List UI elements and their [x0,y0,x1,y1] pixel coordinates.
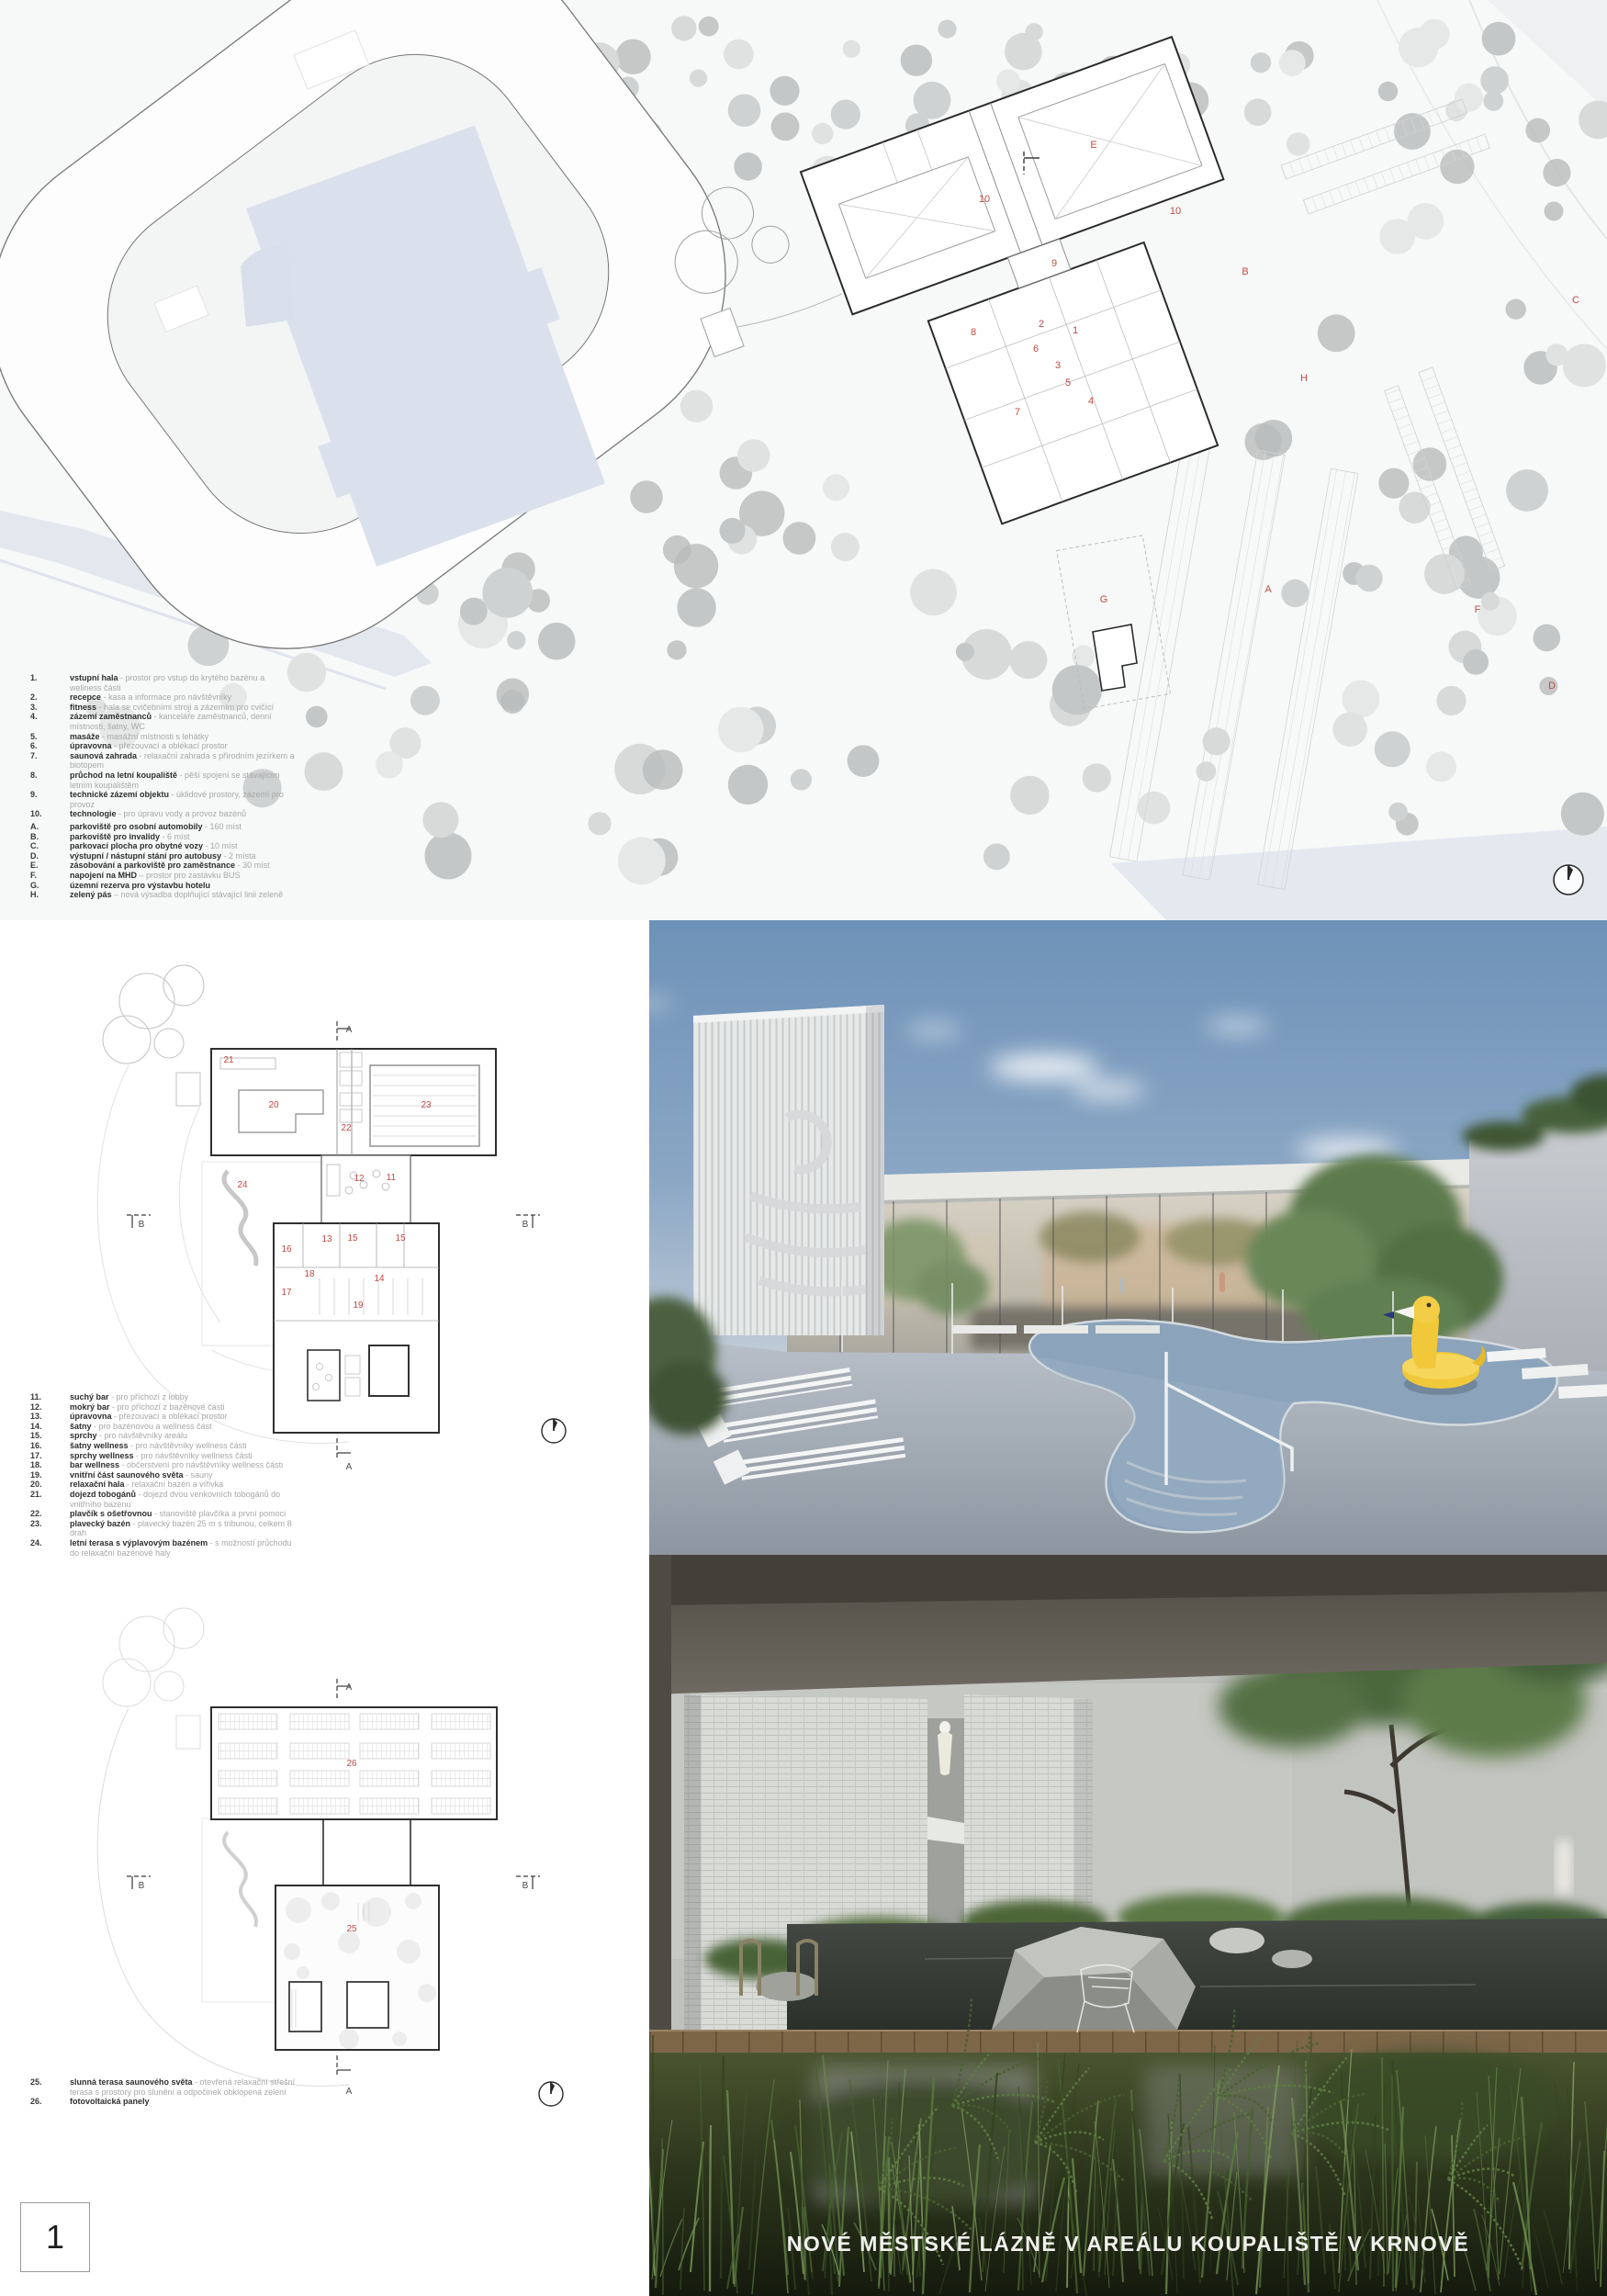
plan-label: 6 [1033,343,1039,355]
legend-row: 1.vstupní hala - prostor pro vstup do kr… [30,673,306,692]
legend-row: H.zelený pás – nová výsadba doplňující s… [30,890,306,900]
roof-plan-legend: 25.slunná terasa saunového světa - otevř… [30,2077,306,2107]
plan-label: H [1300,373,1308,384]
plan-label: 25 [346,1924,357,1934]
legend-row: 6.úpravovna - přezouvací a oblékací pros… [30,741,306,751]
person-right [1556,1840,1572,1895]
plan-label: 12 [354,1174,365,1184]
legend-row: 7.saunová zahrada - relaxační zahrada s … [30,751,306,771]
plan-label: 11 [387,1173,397,1183]
legend-row: 26.fotovoltaická panely [30,2097,306,2107]
legend-row: 17.sprchy wellness - pro návštěvníky wel… [30,1451,306,1461]
plan-label: 10 [1170,206,1181,217]
legend-row: 13.úpravovna - přezouvací a oblékací pro… [30,1412,306,1422]
north-arrow-roof [539,2082,563,2106]
plan-label: 2 [1039,319,1044,330]
plan-label: 24 [237,1180,248,1190]
plan-label: C [1572,295,1579,306]
plan-label: F [1475,604,1481,615]
legend-row: 19.vnitřní část saunového světa - sauny [30,1470,306,1480]
legend-row: C.parkovací plocha pro obytné vozy - 10 … [30,841,306,851]
page-number: 1 [46,2218,64,2257]
floor-plan-legend: 11.suchý bar - pro příchozí z lobby12.mo… [30,1392,306,1558]
plan-label: 10 [979,194,990,205]
legend-row: 16.šatny wellness - pro návštěvníky well… [30,1441,306,1451]
plan-label: 15 [347,1233,358,1244]
plan-label: B [1242,266,1248,277]
plan-label: 15 [395,1233,406,1244]
existing-dome [241,246,294,327]
legend-row: 2.recepce - kasa a informace pro návštěv… [30,692,306,703]
plan-label: A [346,1683,353,1693]
legend-row: 18.bar wellness - občerstvení pro návště… [30,1460,306,1470]
plan-label: 8 [971,327,976,338]
plan-label: 19 [353,1300,364,1311]
render-pool-exterior [649,920,1607,1555]
legend-row: 22.plavčík s ošetřovnou - stanoviště pla… [30,1509,306,1519]
poster-title: NOVÉ MĚSTSKÉ LÁZNĚ V AREÁLU KOUPALIŠTĚ V… [649,2232,1607,2257]
plan-label: 3 [1055,360,1061,371]
render-sauna-courtyard: NOVÉ MĚSTSKÉ LÁZNĚ V AREÁLU KOUPALIŠTĚ V… [649,1555,1607,2296]
legend-row: 3.fitness - hala se cvičebními stroji a … [30,703,306,713]
legend-row: 8.průchod na letní koupaliště - pěší spo… [30,771,306,790]
plan-label: G [1100,594,1108,605]
plan-label: 9 [1051,258,1057,269]
legend-row: 12.mokrý bar - pro příchozí z bazénové č… [30,1402,306,1412]
plan-label: D [1548,681,1556,692]
plan-label: A [1264,584,1272,595]
plan-label: 18 [304,1269,315,1279]
legend-row: 5.masáže - masážní místnosti s lehátky [30,732,306,742]
plan-label: 1 [1073,325,1078,336]
legend-row: 9.technické zázemí objektu - úklidové pr… [30,790,306,809]
left-column [649,1555,671,2051]
plan-label: 7 [1015,407,1020,418]
legend-row: 11.suchý bar - pro příchozí z lobby [30,1392,306,1402]
site-legend-lettered: A.parkoviště pro osobní automobily - 160… [30,822,306,900]
pond [787,1919,1607,2030]
north-arrow-site [1554,865,1583,895]
plan-label: 23 [421,1100,432,1110]
legend-row: 23.plavecký bazén - plavecký bazén 25 m … [30,1519,306,1538]
plan-label: A [346,1025,353,1035]
legend-row: G.územní rezerva pro výstavbu hotelu [30,881,306,891]
legend-row: 24.letní terasa s výplavovým bazénem - s… [30,1538,306,1558]
legend-row: 10.technologie - pro úpravu vody a provo… [30,809,306,819]
plan-label: 14 [374,1274,385,1284]
plan-label: 13 [321,1234,332,1244]
roof-plan-drawing: 2625AABB [73,1598,643,2112]
legend-row: 15.sprchy - pro návštěvníky areálu [30,1431,306,1441]
site-legend-numbered: 1.vstupní hala - prostor pro vstup do kr… [30,673,306,819]
plan-label: B [139,1220,145,1230]
plan-label: E [1090,140,1096,151]
legend-row: 4.zázemí zaměstnanců - kanceláře zaměstn… [30,712,306,731]
plan-label: 20 [268,1100,279,1110]
legend-row: 25.slunná terasa saunového světa - otevř… [30,2077,306,2097]
plan-label: A [346,2087,353,2097]
legend-row: 20.relaxační hala - relaxační bazén a ví… [30,1480,306,1490]
plan-label: 16 [281,1244,292,1255]
page-number-box: 1 [20,2202,90,2272]
plan-label: 4 [1088,396,1094,407]
site-plan-section: E10109B82136547HAGFCD 1.vstupní hala - p… [0,0,1607,920]
plan-label: 5 [1065,377,1071,388]
legend-row: 21.dojezd tobogánů - dojezd dvou venkovn… [30,1490,306,1509]
legend-row: E.zásobování a parkoviště pro zaměstnanc… [30,861,306,871]
legend-row: B.parkoviště pro invalidy - 6 míst [30,832,306,842]
plan-label: B [523,1220,529,1230]
legend-row: 14.šatny - pro bazénovou a wellness část [30,1422,306,1432]
legend-row: F.napojení na MHD – prostor pro zastávku… [30,871,306,881]
north-arrow-floor [542,1419,566,1443]
plan-label: B [523,1881,529,1891]
plan-label: B [139,1881,145,1891]
plan-label: 17 [281,1288,292,1298]
plan-label: 26 [346,1759,357,1769]
legend-row: D.výstupní / nástupní stání pro autobusy… [30,851,306,861]
plan-label: A [346,1462,353,1472]
plan-label: 21 [223,1055,234,1065]
plan-label: 22 [341,1123,352,1133]
legend-row: A.parkoviště pro osobní automobily - 160… [30,822,306,832]
